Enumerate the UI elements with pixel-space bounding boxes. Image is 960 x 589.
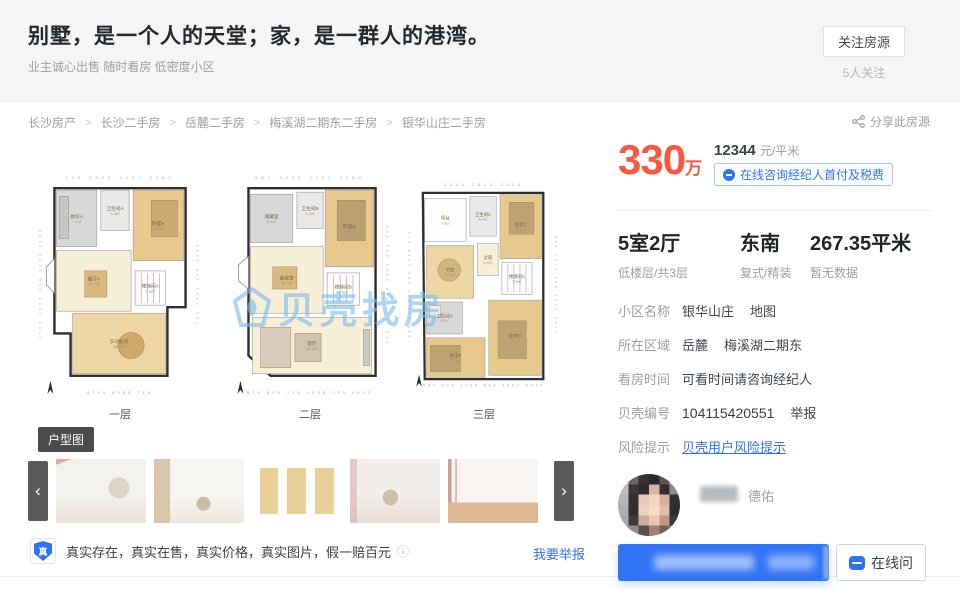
info-icon[interactable]: ⓘ [397, 543, 409, 560]
detail-row-listing-id: 贝壳编号 104115420551 举报 [618, 403, 932, 422]
svg-text:748 2122 508 1084 825 407: 748 2122 508 1084 825 407 [386, 222, 390, 343]
breadcrumb-separator: > [254, 117, 260, 129]
floorplan-caption: 一层 [109, 406, 131, 422]
stat-rooms: 5室2厅 低楼层/共3层 [618, 227, 688, 281]
stat-value: 267.35平米 [810, 227, 911, 256]
authenticity-shield-icon: 真 [30, 538, 56, 564]
floorplan-drawing-3: 3044 2813 3024阳台7.3㎡卫生间C6.4㎡卧室C15.8㎡书房14… [404, 170, 564, 402]
stat-sub: 暂无数据 [810, 264, 911, 281]
chat-bubble-icon [723, 169, 735, 181]
call-agent-button[interactable] [618, 544, 829, 581]
stat-sub: 低楼层/共3层 [618, 264, 688, 281]
svg-text:5.6㎡: 5.6㎡ [513, 279, 522, 284]
chat-button-label: 在线问 [871, 553, 913, 573]
stat-sub: 复式/精装 [740, 264, 791, 281]
photo-category-tag[interactable]: 户型图 [38, 427, 94, 452]
svg-text:44.5㎡: 44.5㎡ [306, 346, 317, 351]
svg-text:6.4㎡: 6.4㎡ [479, 217, 488, 222]
svg-text:4.5㎡: 4.5㎡ [440, 318, 449, 323]
consult-agent-button[interactable]: 在线咨询经纪人首付及税费 [714, 163, 893, 186]
detail-row-community: 小区名称 银华山庄 地图 [618, 301, 932, 320]
detail-label: 小区名称 [618, 301, 682, 320]
subdistrict-link[interactable]: 梅溪湖二期东 [724, 335, 802, 354]
agent-card: 德佑 [618, 474, 932, 544]
photo-thumbnail-bedroom[interactable] [448, 459, 538, 523]
photo-thumbnail-floorplans[interactable] [252, 459, 342, 523]
share-icon [852, 115, 865, 128]
stat-value: 东南 [740, 227, 791, 256]
unit-price: 12344 元/平米 [714, 142, 799, 159]
phone-number-blurred [768, 555, 814, 570]
shield-glyph: 真 [38, 545, 47, 558]
avatar-pixelated-photo [618, 474, 680, 536]
svg-text:1767 1152 908 1262 2162: 1767 1152 908 1262 2162 [38, 227, 42, 339]
floorplan-caption: 二层 [299, 406, 321, 422]
contact-actions: 在线问 [618, 544, 932, 581]
floorplan-caption: 三层 [473, 406, 495, 422]
svg-text:15.8㎡: 15.8㎡ [515, 227, 526, 232]
authenticity-bar: 真 真实存在，真实在售，真实价格，真实图片，假一赔百元 ⓘ 我要举报 [30, 538, 600, 564]
svg-text:948 672 905 994 1773 972: 948 672 905 994 1773 972 [408, 229, 412, 337]
prev-photos-button[interactable]: ‹ [28, 461, 48, 521]
follower-count: 5人关注 [823, 64, 905, 81]
svg-text:719 3225 2437 3080: 719 3225 2437 3080 [65, 175, 174, 180]
svg-text:19.9㎡: 19.9㎡ [281, 280, 292, 285]
svg-text:餐厅A: 餐厅A [88, 275, 101, 282]
report-link[interactable]: 我要举报 [533, 544, 585, 563]
detail-label: 风险提示 [618, 437, 682, 456]
svg-text:667 909 1233 890 1307 3011: 667 909 1233 890 1307 3011 [423, 384, 545, 388]
svg-text:20.6㎡: 20.6㎡ [451, 358, 462, 363]
svg-text:客厅: 客厅 [307, 340, 317, 347]
total-price: 330万 [618, 136, 702, 184]
breadcrumb-item[interactable]: 梅溪湖二期东二手房 [269, 114, 377, 131]
floorplan-third-floor[interactable]: 3044 2813 3024阳台7.3㎡卫生间C6.4㎡卧室C15.8㎡书房14… [404, 170, 564, 422]
svg-text:楼梯间B: 楼梯间B [335, 284, 352, 291]
svg-text:19.4㎡: 19.4㎡ [510, 338, 521, 343]
svg-text:4745 6085 719: 4745 6085 719 [87, 390, 153, 395]
svg-text:6.3㎡: 6.3㎡ [267, 219, 276, 224]
detail-row-risk: 风险提示 贝壳用户风险提示 [618, 437, 932, 456]
next-photos-button[interactable]: › [554, 461, 574, 521]
floorplan-second-floor[interactable]: 667 3309 2792 3084储藏室6.3㎡卫生间B4.3㎡卧室B15.9… [222, 170, 398, 422]
floorplan-first-floor[interactable]: 719 3225 2437 3080厨房A7.4㎡卫生间A5.4㎡卧室A13.5… [30, 170, 210, 422]
floorplan-gallery: 719 3225 2437 3080厨房A7.4㎡卫生间A5.4㎡卧室A13.5… [30, 170, 564, 422]
detail-label: 所在区域 [618, 335, 682, 354]
viewing-time-value: 可看时间请咨询经纪人 [682, 369, 812, 388]
stat-area: 267.35平米 暂无数据 [810, 227, 911, 281]
detail-label: 贝壳编号 [618, 403, 682, 422]
map-link[interactable]: 地图 [750, 301, 776, 320]
share-listing-button[interactable]: 分享此房源 [852, 113, 930, 130]
breadcrumb: 长沙房产 > 长沙二手房 > 岳麓二手房 > 梅溪湖二期东二手房 > 银华山庄二… [28, 114, 486, 131]
breadcrumb-separator: > [85, 117, 91, 129]
svg-text:3044 2813 3024: 3044 2813 3024 [444, 183, 524, 187]
chat-bubble-icon [849, 556, 865, 570]
svg-text:13.5㎡: 13.5㎡ [153, 226, 164, 231]
thumbnail-strip: ‹ › [28, 459, 574, 523]
svg-text:870 825 719 1248 735 4033: 870 825 719 1248 735 4033 [247, 390, 373, 395]
photo-thumbnail-dining-room[interactable] [154, 459, 244, 523]
svg-text:15.9㎡: 15.9㎡ [344, 229, 355, 234]
button-highlight [823, 546, 829, 579]
svg-text:38.4㎡: 38.4㎡ [113, 344, 124, 349]
agent-name-blurred [700, 486, 738, 502]
svg-text:5.4㎡: 5.4㎡ [110, 211, 119, 216]
district-link[interactable]: 岳麓 [682, 335, 708, 354]
svg-text:多功能间: 多功能间 [110, 338, 129, 345]
online-chat-button[interactable]: 在线问 [836, 544, 926, 581]
hero-banner: 别墅，是一个人的天堂；家，是一群人的港湾。 业主诚心出售 随时看房 低密度小区 … [0, 0, 960, 103]
detail-label: 看房时间 [618, 369, 682, 388]
property-listing-page: 别墅，是一个人的天堂；家，是一群人的港湾。 业主诚心出售 随时看房 低密度小区 … [0, 0, 960, 589]
agency-brand: 德佑 [748, 486, 774, 505]
svg-text:463 4031 176 1144: 463 4031 176 1144 [196, 242, 200, 324]
price-section: 330万 12344 元/平米 在线咨询经纪人首付及税费 [618, 140, 932, 196]
detail-row-viewing-time: 看房时间 可看时间请咨询经纪人 [618, 369, 932, 388]
svg-text:4.3㎡: 4.3㎡ [305, 211, 314, 216]
phone-number-blurred [654, 555, 754, 570]
share-label: 分享此房源 [870, 113, 930, 130]
follow-listing-button[interactable]: 关注房源 [823, 26, 905, 57]
svg-text:7.3㎡: 7.3㎡ [441, 220, 450, 225]
photo-thumbnail-living-room[interactable] [56, 459, 146, 523]
svg-text:厨房A: 厨房A [70, 213, 83, 220]
svg-text:卫生间B: 卫生间B [302, 205, 319, 212]
breadcrumb-separator: > [169, 117, 175, 129]
divider [618, 210, 932, 211]
svg-text:1747 1024 457 2727 949: 1747 1024 457 2727 949 [554, 233, 558, 333]
svg-text:卧室A: 卧室A [152, 220, 165, 227]
listing-info-panel: 330万 12344 元/平米 在线咨询经纪人首付及税费 5室2厅 低楼层/共3… [618, 140, 932, 581]
stat-value: 5室2厅 [618, 227, 688, 256]
floorplan-drawing-2: 667 3309 2792 3084储藏室6.3㎡卫生间B4.3㎡卧室B15.9… [222, 170, 398, 402]
svg-text:14.5㎡: 14.5㎡ [445, 272, 456, 277]
price-unit: 万 [685, 159, 702, 178]
detail-row-district: 所在区域 岳麓 梅溪湖二期东 [618, 335, 932, 354]
breadcrumb-item[interactable]: 长沙房产 [28, 114, 76, 131]
svg-text:667 3309 2792 3084: 667 3309 2792 3084 [255, 175, 364, 180]
listing-title: 别墅，是一个人的天堂；家，是一群人的港湾。 [28, 20, 490, 50]
breadcrumb-separator: > [386, 117, 392, 129]
svg-text:5.6㎡: 5.6㎡ [339, 290, 348, 295]
svg-text:起居室: 起居室 [280, 274, 294, 281]
breadcrumb-item[interactable]: 岳麓二手房 [185, 114, 245, 131]
community-name[interactable]: 银华山庄 [682, 301, 734, 320]
listing-id-value: 104115420551 [682, 405, 774, 421]
breadcrumb-item[interactable]: 银华山庄二手房 [402, 114, 486, 131]
svg-text:6.3㎡: 6.3㎡ [146, 289, 155, 294]
listing-subtitle: 业主诚心出售 随时看房 低密度小区 [28, 58, 215, 75]
svg-text:4.9㎡: 4.9㎡ [484, 260, 493, 265]
key-stats: 5室2厅 低楼层/共3层 东南 复式/精装 267.35平米 暂无数据 [618, 227, 932, 285]
report-listing-link[interactable]: 举报 [790, 403, 816, 422]
stat-orientation: 东南 复式/精装 [740, 227, 791, 281]
risk-notice-link[interactable]: 贝壳用户风险提示 [682, 437, 786, 456]
breadcrumb-item[interactable]: 长沙二手房 [100, 114, 160, 131]
agent-avatar[interactable] [618, 474, 680, 536]
svg-text:储藏室: 储藏室 [265, 213, 279, 220]
consult-button-label: 在线咨询经纪人首付及税费 [740, 166, 884, 183]
floorplan-drawing-1: 719 3225 2437 3080厨房A7.4㎡卫生间A5.4㎡卧室A13.5… [30, 170, 210, 402]
photo-thumbnail-hallway[interactable] [350, 459, 440, 523]
svg-text:25.2㎡: 25.2㎡ [88, 281, 99, 286]
svg-text:卧室B: 卧室B [343, 223, 355, 230]
svg-text:楼梯间A: 楼梯间A [142, 283, 160, 290]
detail-list: 小区名称 银华山庄 地图 所在区域 岳麓 梅溪湖二期东 看房时间 可看时间请咨询… [618, 301, 932, 456]
authenticity-text: 真实存在，真实在售，真实价格，真实图片，假一赔百元 [66, 542, 391, 561]
svg-text:卫生间A: 卫生间A [106, 205, 124, 212]
svg-text:7.4㎡: 7.4㎡ [72, 219, 81, 224]
